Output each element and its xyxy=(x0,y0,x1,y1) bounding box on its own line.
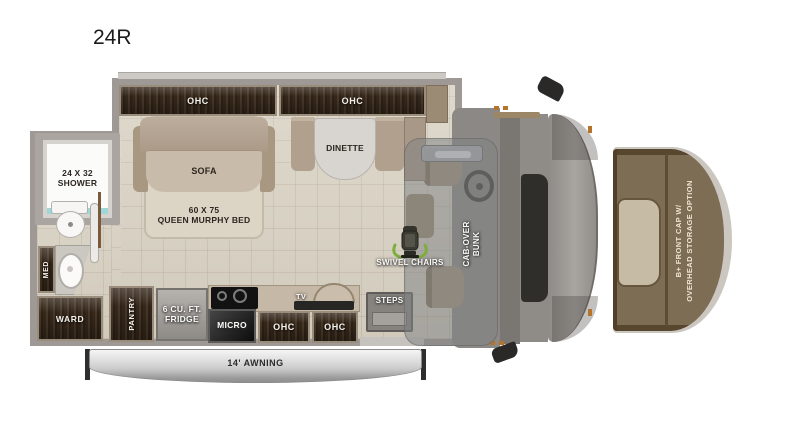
ohc-label: OHC xyxy=(324,322,346,332)
front-cap-seam xyxy=(665,153,668,327)
micro-label: MICRO xyxy=(217,321,247,331)
dinette-bench-right xyxy=(375,117,404,171)
sofa-back xyxy=(140,117,268,152)
slideout-exterior-wall xyxy=(118,72,446,79)
corner-cabinet xyxy=(426,85,448,123)
tv xyxy=(294,301,354,310)
dinette-label: DINETTE xyxy=(326,144,364,154)
burner-small xyxy=(217,291,227,301)
marker-light xyxy=(503,106,508,110)
sink-drain xyxy=(67,266,73,272)
sofa-label: SOFA xyxy=(191,166,216,176)
toilet-flush xyxy=(68,222,73,227)
front-cap-inset: B+ FRONT CAP W/ OVERHEAD STORAGE OPTION xyxy=(613,149,724,331)
ward-label: WARD xyxy=(56,314,84,324)
refrigerator: 6 CU. FT. FRIDGE xyxy=(156,288,208,341)
burner-large xyxy=(233,289,247,303)
fender-bottom xyxy=(552,296,598,342)
ohc-label: OHC xyxy=(273,322,295,332)
murphy-bed-label: 60 X 75 QUEEN MURPHY BED xyxy=(144,206,264,226)
windshield xyxy=(521,174,548,302)
overhead-cabinet-kitchen-1: OHC xyxy=(258,311,310,343)
front-cap-bottom-band xyxy=(613,325,724,331)
ohc-label: OHC xyxy=(342,96,364,106)
pantry: PANTRY xyxy=(109,286,154,342)
dinette-bench-left xyxy=(291,117,315,171)
overhead-cabinet-kitchen-2: OHC xyxy=(312,311,358,343)
bathroom-door xyxy=(98,192,101,248)
marker-light xyxy=(588,309,592,316)
dinette-table: DINETTE xyxy=(314,118,376,180)
model-title: 24R xyxy=(93,26,132,50)
bunk-ladder-slot xyxy=(435,151,471,158)
microwave: MICRO xyxy=(208,309,256,343)
front-cap-label: B+ FRONT CAP W/ OVERHEAD STORAGE OPTION xyxy=(673,161,697,321)
step-tread xyxy=(372,312,407,326)
med-label: MED xyxy=(43,261,50,278)
overhead-cabinet-right: OHC xyxy=(279,85,426,116)
wardrobe: WARD xyxy=(37,296,103,341)
awning-label: 14' AWNING xyxy=(90,358,421,368)
cab-dashboard xyxy=(500,112,520,344)
bunk-ladder xyxy=(421,145,483,162)
cab-over-bunk-label: CAB-OVER BUNK xyxy=(462,184,484,304)
front-cap-top-band xyxy=(613,149,724,155)
awning: 14' AWNING xyxy=(85,349,426,384)
medicine-cabinet: MED xyxy=(38,246,55,293)
tv-label: TV xyxy=(296,293,306,302)
overhead-cabinet-left: OHC xyxy=(119,85,277,116)
sofa: SOFA xyxy=(146,150,262,192)
floorplan-page: 24R OHC OHC SOFA 60 X 75 QUEEN MURPHY BE… xyxy=(0,0,800,424)
awning-roller: 14' AWNING xyxy=(89,349,422,383)
marker-light xyxy=(588,126,592,133)
cab-roof-trim xyxy=(494,112,540,118)
swivel-chairs-label: SWIVEL CHAIRS xyxy=(360,258,460,267)
ohc-label: OHC xyxy=(187,96,209,106)
side-mirror-top-icon xyxy=(536,75,567,102)
front-cap-windshield xyxy=(617,198,661,287)
pantry-label: PANTRY xyxy=(127,297,136,331)
marker-light xyxy=(494,106,499,110)
fender-top xyxy=(552,114,598,160)
